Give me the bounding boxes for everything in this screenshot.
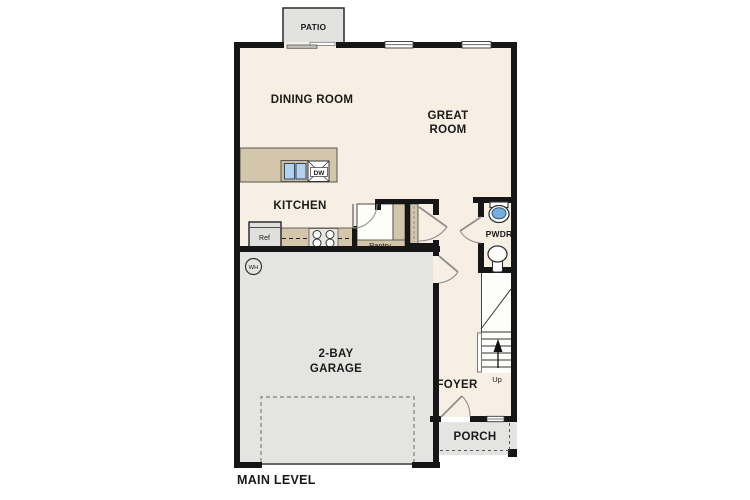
garage-label-line2: GARAGE (310, 363, 362, 375)
window-porch (487, 416, 504, 421)
water-heater-label: WH (249, 265, 259, 271)
dishwasher: DW (308, 161, 329, 182)
stair-handrail (478, 333, 482, 372)
great-room-label-line1: GREAT (428, 110, 469, 122)
garage-label-line1: 2-BAY (319, 348, 354, 360)
toilet (489, 202, 509, 223)
pantry-label: Pantry (369, 241, 391, 250)
patio-label: PATIO (301, 22, 327, 32)
cooktop (309, 229, 338, 249)
kitchen-label: KITCHEN (273, 200, 326, 212)
patio-slider-door (284, 42, 336, 48)
sink-basin-right (296, 164, 306, 180)
up-label: Up (492, 375, 502, 384)
foyer-label: FOYER (436, 379, 478, 391)
floor-plan-svg: DW Ref (0, 0, 750, 500)
main-level-title: MAIN LEVEL (237, 473, 316, 487)
refrigerator-label: Ref (259, 235, 270, 242)
dishwasher-label: DW (314, 170, 326, 177)
powder-room-label: PWDR (486, 229, 513, 239)
dining-room-label: DINING ROOM (271, 94, 354, 106)
kitchen-island: DW (240, 148, 337, 182)
toilet-bowl (492, 208, 506, 219)
window-great-room-1 (385, 42, 413, 49)
floor-plan-page: DW Ref (0, 0, 750, 500)
water-heater: WH (246, 259, 262, 275)
porch-label: PORCH (453, 431, 496, 443)
window-great-room-2 (462, 42, 491, 49)
great-room-label-line2: ROOM (430, 124, 467, 136)
sink-basin-left (285, 164, 295, 180)
wall-chase (410, 204, 418, 244)
